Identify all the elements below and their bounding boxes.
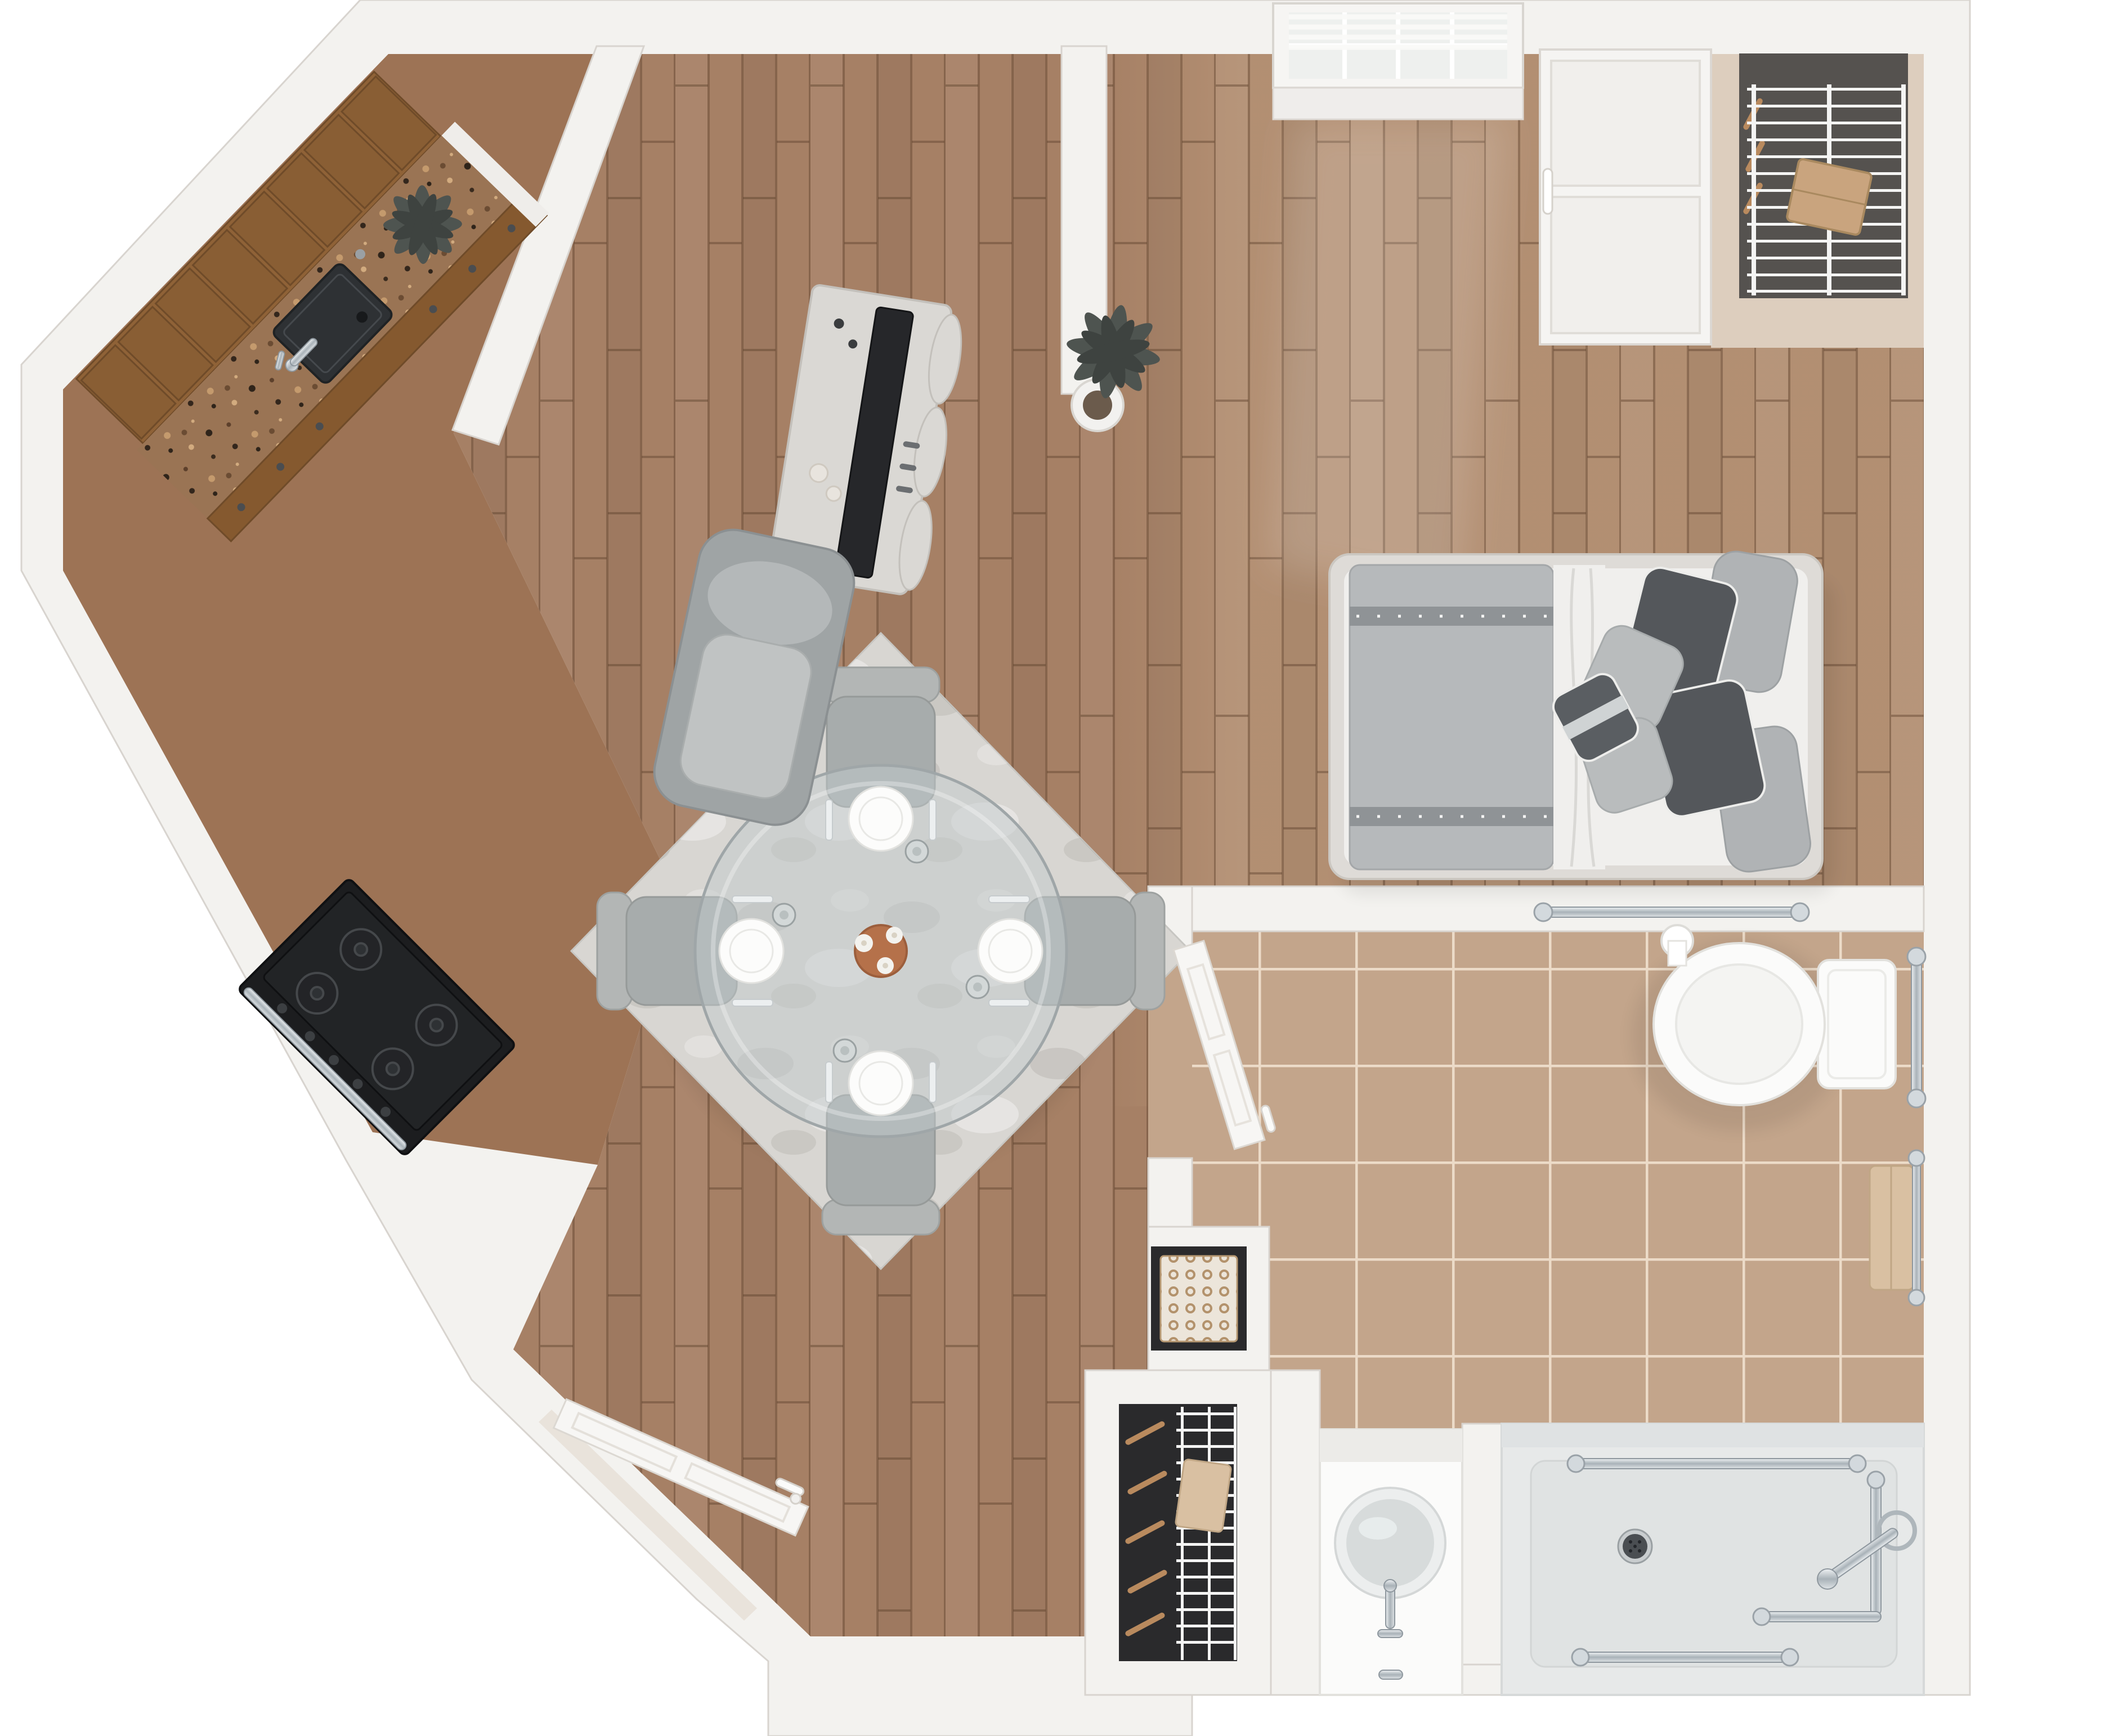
roll-in-shower [1502, 1424, 1924, 1695]
toilet-seat [1676, 965, 1802, 1084]
bedroom-window [1273, 3, 1523, 119]
flower-vase [855, 925, 907, 977]
linen-niche [1151, 1246, 1247, 1351]
floor-plan-page [0, 0, 2114, 1736]
storage-box [1786, 159, 1872, 236]
wardrobe-door-panel-bottom [1551, 197, 1700, 333]
vanity [1320, 1429, 1462, 1695]
hand-shower-head [1817, 1569, 1838, 1589]
floor-plan-canvas [0, 0, 2114, 1736]
window-sill [1273, 88, 1523, 119]
corner-closet [1739, 53, 1908, 298]
toilet-tank [1818, 960, 1896, 1088]
basket-pattern [1161, 1256, 1237, 1342]
wardrobe-handle [1543, 169, 1552, 214]
bed [1329, 548, 1835, 895]
duvet-band-top [1350, 607, 1553, 626]
vanity-basin-bowl [1346, 1499, 1434, 1587]
wardrobe-door-panel-top [1551, 61, 1700, 186]
closet-folded-towel [1175, 1459, 1231, 1533]
walk-in-closet [1119, 1404, 1237, 1661]
shower-threshold-strip [1502, 1424, 1924, 1447]
vanity-lower-handle [1379, 1670, 1403, 1679]
bathroom-west-wall-lower [1148, 1158, 1192, 1227]
shower-half-wall [1462, 1424, 1502, 1665]
built-in-wardrobe [1540, 50, 1711, 344]
duvet-band-bottom [1350, 807, 1553, 826]
shower-drain [1618, 1529, 1652, 1563]
vanity-backsplash [1320, 1429, 1462, 1462]
closet-vanity-divider-wall [1271, 1370, 1320, 1695]
towel-bar [1870, 1150, 1924, 1306]
